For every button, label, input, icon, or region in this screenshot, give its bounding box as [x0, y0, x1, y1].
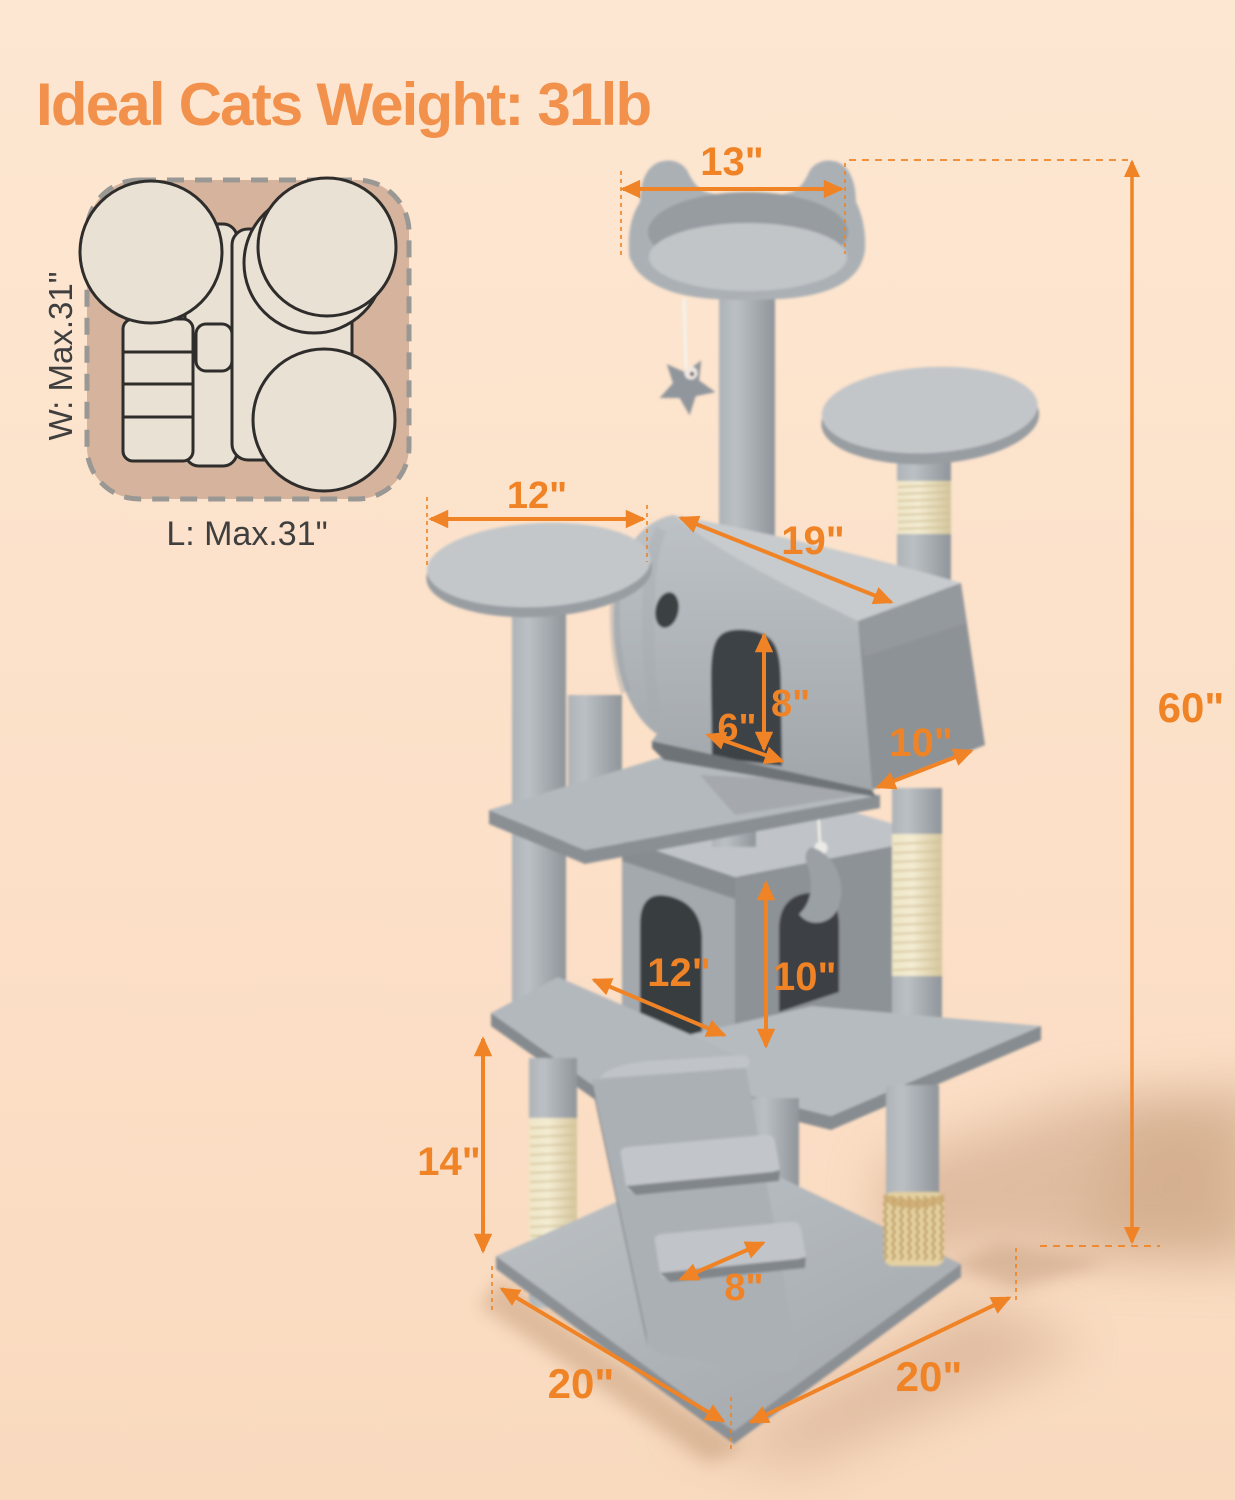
svg-text:19": 19" — [781, 519, 844, 563]
svg-text:W: Max.31": W: Max.31" — [42, 272, 79, 441]
svg-text:L: Max.31": L: Max.31" — [166, 515, 327, 553]
svg-text:6": 6" — [717, 707, 756, 749]
svg-text:20": 20" — [896, 1353, 963, 1400]
svg-text:13": 13" — [700, 140, 763, 184]
svg-text:14": 14" — [417, 1140, 480, 1184]
svg-text:20": 20" — [548, 1360, 615, 1407]
svg-text:8": 8" — [771, 683, 810, 725]
svg-text:12": 12" — [507, 475, 567, 517]
svg-text:Ideal Cats Weight: 31lb: Ideal Cats Weight: 31lb — [36, 71, 650, 138]
svg-text:10": 10" — [773, 955, 836, 999]
svg-text:60": 60" — [1158, 684, 1225, 731]
svg-text:10": 10" — [889, 721, 952, 765]
svg-text:12": 12" — [647, 951, 710, 995]
svg-text:8": 8" — [724, 1267, 763, 1309]
